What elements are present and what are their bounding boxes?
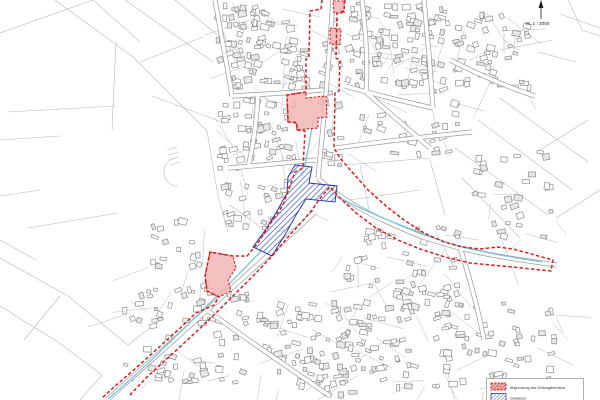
plan-map-sheet: M. 1 : 2000 Abgrenzung des Geltungsberei…: [0, 0, 600, 400]
north-arrow-icon: [539, 0, 544, 19]
legend-symbol-water-icon: [491, 394, 506, 400]
legend-label-boundary: Abgrenzung des Geltungsbereichs: [510, 386, 565, 390]
legend: Abgrenzung des Geltungsbereichs Gewässer: [487, 379, 584, 400]
legend-label-water: Gewässer: [510, 397, 527, 400]
legend-symbol-boundary-icon: [491, 383, 506, 390]
map-canvas: M. 1 : 2000 Abgrenzung des Geltungsberei…: [0, 0, 600, 400]
map-layers: [0, 0, 600, 400]
water-hatch-area: [253, 165, 337, 256]
scale-label: M. 1 : 2000: [526, 21, 550, 26]
